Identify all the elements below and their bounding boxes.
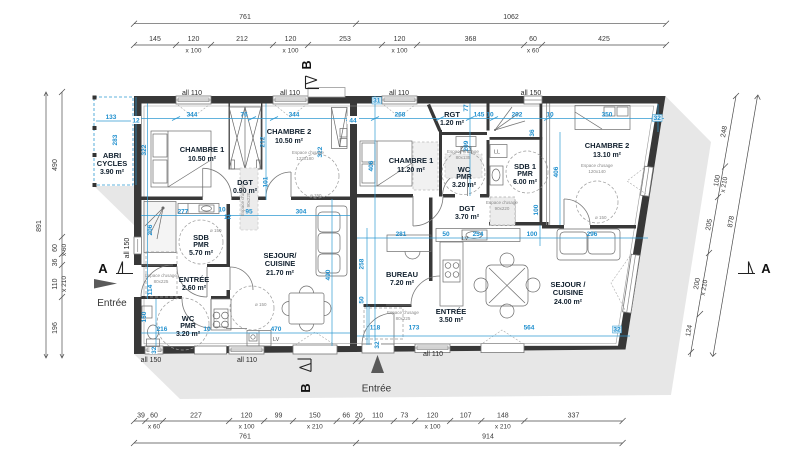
svg-text:761: 761 [239,14,251,21]
svg-text:344: 344 [187,112,198,119]
svg-text:268: 268 [395,112,406,119]
svg-text:x 60: x 60 [148,424,161,431]
svg-text:99: 99 [275,413,283,420]
svg-text:12: 12 [224,214,232,221]
svg-text:SDB: SDB [193,233,209,242]
svg-text:Espace d'usage: Espace d'usage [387,310,419,315]
svg-text:110: 110 [52,278,59,289]
svg-text:PMR: PMR [193,242,209,249]
svg-text:x 60: x 60 [61,243,68,256]
svg-text:322: 322 [141,144,148,155]
svg-text:CHAMBRE 2: CHAMBRE 2 [267,127,312,136]
svg-text:60: 60 [150,413,158,420]
svg-text:CHAMBRE 1: CHAMBRE 1 [180,145,225,154]
svg-text:WC: WC [458,165,471,174]
svg-text:21.70 m²: 21.70 m² [266,270,295,277]
svg-text:80x225: 80x225 [154,279,169,284]
svg-text:1.20 m²: 1.20 m² [440,120,465,127]
svg-text:x 100: x 100 [392,48,408,55]
svg-text:10: 10 [218,207,226,214]
svg-text:173: 173 [409,325,420,332]
svg-text:31: 31 [373,98,381,105]
svg-text:Espace d'usage: Espace d'usage [581,163,613,168]
svg-text:x 100: x 100 [283,48,299,55]
svg-text:490: 490 [52,159,59,171]
svg-text:296: 296 [587,231,598,238]
svg-text:145: 145 [474,112,485,119]
svg-text:120: 120 [241,413,253,420]
svg-text:CYCLES: CYCLES [97,159,127,168]
svg-text:Espace d'usage: Espace d'usage [145,273,177,278]
svg-text:254: 254 [473,231,484,238]
svg-text:DGT: DGT [459,204,475,213]
svg-text:PMR: PMR [456,174,472,181]
svg-text:32: 32 [613,327,621,334]
svg-text:ø 150: ø 150 [210,228,222,233]
svg-text:RGT: RGT [444,110,460,119]
svg-text:all 110: all 110 [389,90,409,97]
svg-text:WC: WC [182,314,195,323]
svg-text:32: 32 [374,341,381,349]
svg-text:90x220: 90x220 [495,206,510,211]
svg-text:all 110: all 110 [182,90,202,97]
svg-text:120: 120 [394,36,406,43]
svg-text:425: 425 [598,36,610,43]
svg-text:120: 120 [285,36,297,43]
svg-text:2.60 m²: 2.60 m² [182,285,207,292]
svg-text:CHAMBRE 2: CHAMBRE 2 [585,141,630,150]
svg-text:6.00 m²: 6.00 m² [513,179,538,186]
svg-text:76: 76 [240,112,248,119]
svg-text:107: 107 [460,413,472,420]
svg-text:100: 100 [527,231,538,238]
svg-text:281: 281 [396,231,407,238]
svg-text:B: B [300,60,314,69]
svg-text:3.50 m²: 3.50 m² [439,317,464,324]
svg-text:50: 50 [442,231,450,238]
svg-text:Espace d'usage: Espace d'usage [447,149,479,154]
svg-text:3.20 m²: 3.20 m² [176,331,201,338]
svg-text:LV: LV [462,236,469,242]
svg-text:Espace d'usage: Espace d'usage [240,184,245,216]
svg-text:212: 212 [260,136,267,147]
svg-text:all 110: all 110 [237,357,257,364]
svg-text:216: 216 [157,326,168,333]
svg-text:133: 133 [106,114,117,121]
svg-text:32: 32 [151,346,158,354]
svg-text:277: 277 [178,209,189,216]
svg-text:x 100: x 100 [425,424,441,431]
svg-text:A: A [98,261,108,276]
svg-text:Entrée: Entrée [362,384,392,395]
svg-text:350: 350 [602,112,613,119]
svg-text:90x220: 90x220 [246,192,251,207]
svg-text:10.50 m²: 10.50 m² [275,138,304,145]
svg-text:10: 10 [546,112,554,119]
svg-text:258: 258 [359,258,366,269]
svg-text:CHAMBRE 1: CHAMBRE 1 [389,156,434,165]
svg-text:A: A [761,261,771,276]
svg-text:80x225: 80x225 [396,316,411,321]
svg-text:202: 202 [512,112,523,119]
svg-text:212: 212 [236,36,248,43]
svg-text:914: 914 [482,434,494,441]
svg-text:206: 206 [147,224,154,235]
svg-text:20: 20 [355,413,363,420]
svg-text:Espace d'usage: Espace d'usage [486,200,518,205]
svg-text:344: 344 [289,112,300,119]
svg-text:36: 36 [52,259,59,267]
svg-text:227: 227 [190,413,202,420]
svg-text:CUISINE: CUISINE [265,259,295,268]
svg-text:x 100: x 100 [239,424,255,431]
svg-text:13.10 m²: 13.10 m² [593,152,622,159]
svg-text:114: 114 [147,284,154,295]
svg-text:66: 66 [342,413,350,420]
svg-text:123x180: 123x180 [296,156,314,161]
svg-text:CUISINE: CUISINE [553,288,583,297]
svg-text:891: 891 [36,220,43,232]
svg-text:337: 337 [568,413,580,420]
svg-text:77: 77 [463,104,470,112]
svg-text:x 60: x 60 [527,48,540,55]
svg-text:x 210: x 210 [495,424,511,431]
svg-text:100: 100 [533,204,540,215]
svg-text:44: 44 [349,118,357,125]
svg-text:all 110: all 110 [280,90,300,97]
svg-text:all 150: all 150 [521,90,542,97]
svg-text:Espace d'usage: Espace d'usage [292,150,324,155]
svg-text:368: 368 [465,36,477,43]
svg-text:101: 101 [263,176,270,187]
svg-text:196: 196 [52,322,59,334]
svg-text:406: 406 [553,166,560,177]
svg-text:118: 118 [370,325,381,332]
svg-text:3.90 m²: 3.90 m² [100,169,125,176]
svg-text:ø 150: ø 150 [595,215,607,220]
svg-text:60: 60 [529,36,537,43]
svg-text:x 210: x 210 [307,424,323,431]
svg-text:ø 150: ø 150 [310,193,322,198]
svg-text:24.00 m²: 24.00 m² [554,299,583,306]
svg-text:564: 564 [524,325,535,332]
svg-text:x 210: x 210 [61,276,68,292]
svg-text:110: 110 [372,413,383,420]
svg-text:1062: 1062 [503,14,519,21]
svg-text:253: 253 [339,36,351,43]
svg-text:120: 120 [188,36,200,43]
svg-text:all 150: all 150 [124,238,131,259]
svg-text:150: 150 [141,311,148,322]
svg-text:50: 50 [359,296,366,304]
svg-text:150: 150 [309,413,321,420]
svg-text:304: 304 [296,209,307,216]
svg-text:x 100: x 100 [186,48,202,55]
svg-text:490: 490 [325,269,332,280]
svg-text:PMR: PMR [517,171,533,178]
svg-text:80x135: 80x135 [456,155,471,160]
svg-text:145: 145 [149,36,161,43]
svg-text:all 150: all 150 [141,357,162,364]
svg-text:761: 761 [239,434,251,441]
svg-text:7.20 m²: 7.20 m² [390,280,415,287]
svg-text:10: 10 [203,326,211,333]
svg-text:73: 73 [401,413,409,420]
svg-text:11.20 m²: 11.20 m² [397,167,425,174]
svg-text:3.20 m²: 3.20 m² [452,182,477,189]
svg-text:36: 36 [529,129,536,137]
svg-text:148: 148 [497,413,509,420]
svg-text:120: 120 [427,413,439,420]
svg-text:PMR: PMR [180,323,196,330]
svg-text:95: 95 [245,209,253,216]
svg-text:ø 150: ø 150 [255,302,267,307]
svg-text:60: 60 [52,244,59,252]
svg-text:120x140: 120x140 [588,169,606,174]
svg-text:3.70 m²: 3.70 m² [455,214,480,221]
svg-text:406: 406 [368,160,375,171]
svg-text:BUREAU: BUREAU [386,270,418,279]
svg-text:B: B [298,383,313,392]
svg-text:LV: LV [273,337,280,343]
svg-text:Entrée: Entrée [97,298,127,309]
svg-text:470: 470 [271,326,282,333]
svg-text:SDB 1: SDB 1 [514,162,536,171]
svg-text:10.50 m²: 10.50 m² [188,156,217,163]
svg-text:5.70 m²: 5.70 m² [189,250,214,257]
svg-text:10: 10 [486,112,494,119]
svg-text:283: 283 [112,134,119,145]
svg-text:39: 39 [137,413,145,420]
svg-text:ENTRÉE: ENTRÉE [179,275,209,284]
svg-text:LL: LL [494,150,500,156]
svg-text:32: 32 [654,115,662,122]
svg-text:all 110: all 110 [423,351,443,358]
svg-text:12: 12 [132,118,140,125]
svg-text:ENTRÉE: ENTRÉE [436,307,466,316]
